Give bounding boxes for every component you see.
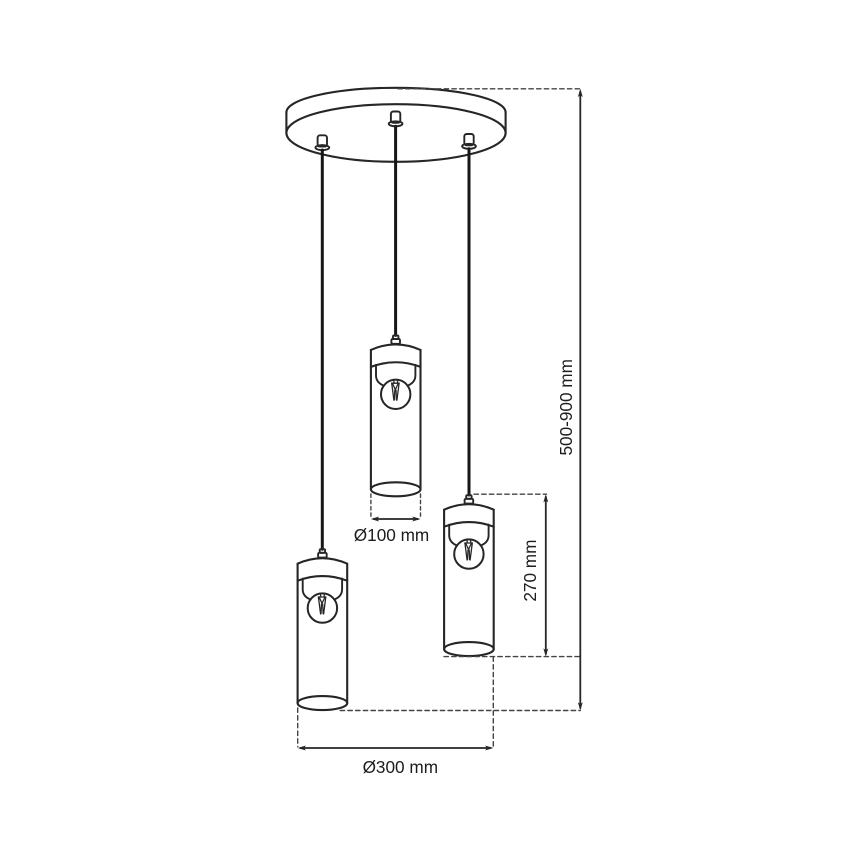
svg-text:Ø300 mm: Ø300 mm <box>363 757 438 777</box>
svg-text:Ø100 mm: Ø100 mm <box>354 525 429 545</box>
svg-text:270 mm: 270 mm <box>520 540 540 602</box>
svg-text:500-900 mm: 500-900 mm <box>556 359 576 456</box>
